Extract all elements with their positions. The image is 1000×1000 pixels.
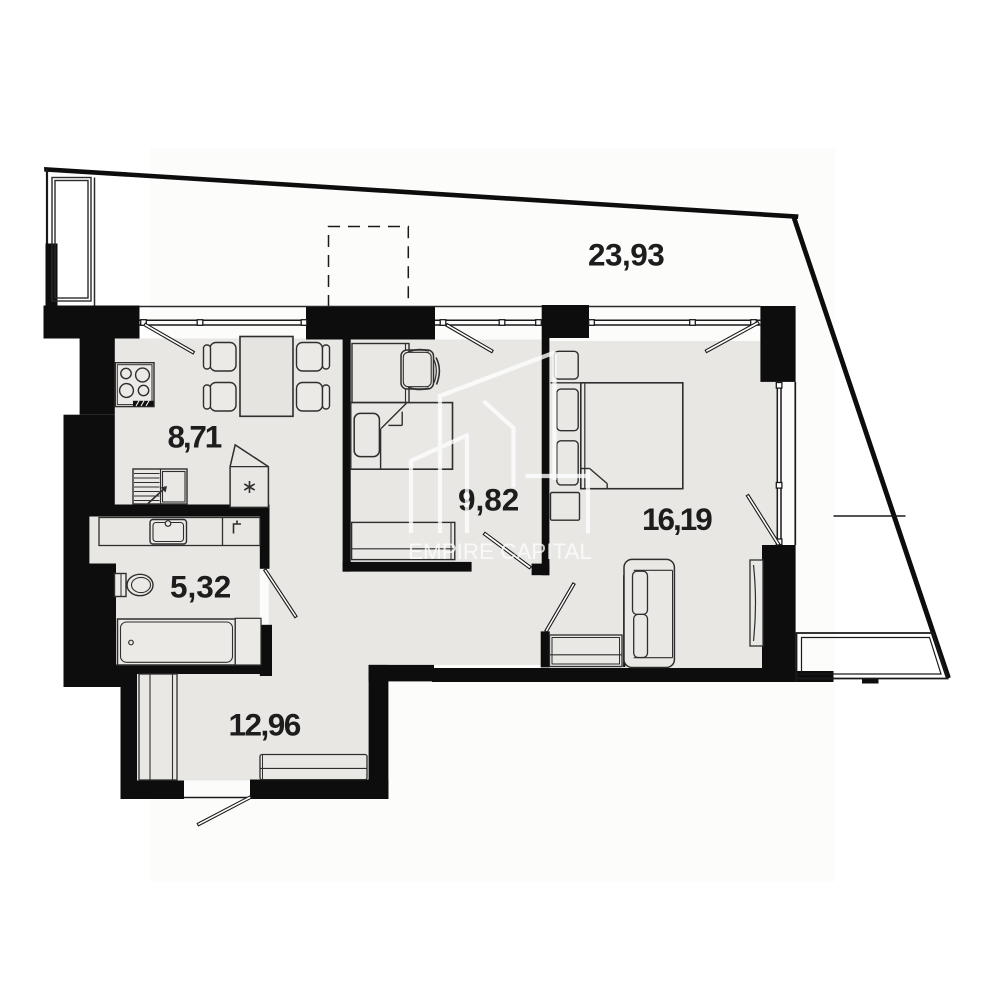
svg-text:23,93: 23,93 xyxy=(588,237,664,273)
svg-text:12,96: 12,96 xyxy=(229,707,301,743)
svg-text:8,71: 8,71 xyxy=(168,418,222,454)
svg-text:16,19: 16,19 xyxy=(642,501,712,537)
svg-text:EMPIRE CAPITAL: EMPIRE CAPITAL xyxy=(408,539,592,564)
svg-text:5,32: 5,32 xyxy=(170,569,231,605)
